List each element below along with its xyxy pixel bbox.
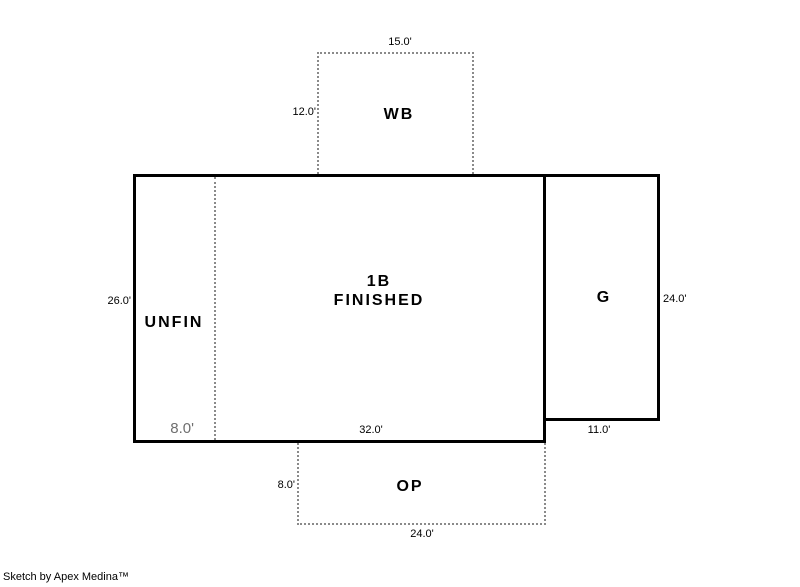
op-left-dimension: 8.0' <box>278 479 295 492</box>
unfin-area-label: UNFIN <box>145 313 204 332</box>
floorplan-sketch: 15.0' 12.0' WB 1B FINISHED 26.0' 32.0' U… <box>0 0 800 587</box>
garage-right-dimension: 24.0' <box>663 293 687 306</box>
op-area-label: OP <box>396 477 423 496</box>
main-area-label-line2: FINISHED <box>334 291 425 310</box>
main-area-label: 1B FINISHED <box>334 272 425 310</box>
sketch-credit: Sketch by Apex Medina™ <box>3 571 129 584</box>
main-bottom-dimension: 32.0' <box>359 424 383 437</box>
garage-area-label: G <box>597 288 611 307</box>
wb-top-dimension: 15.0' <box>388 36 412 49</box>
main-left-dimension: 26.0' <box>107 295 131 308</box>
op-bottom-dimension: 24.0' <box>410 528 434 541</box>
garage-bottom-dimension: 11.0' <box>588 424 611 437</box>
wb-left-dimension: 12.0' <box>292 106 316 119</box>
unfin-divider-line <box>214 177 216 440</box>
wb-area-label: WB <box>384 105 415 124</box>
unfin-width-dimension: 8.0' <box>170 420 194 437</box>
main-area-label-line1: 1B <box>334 272 425 291</box>
